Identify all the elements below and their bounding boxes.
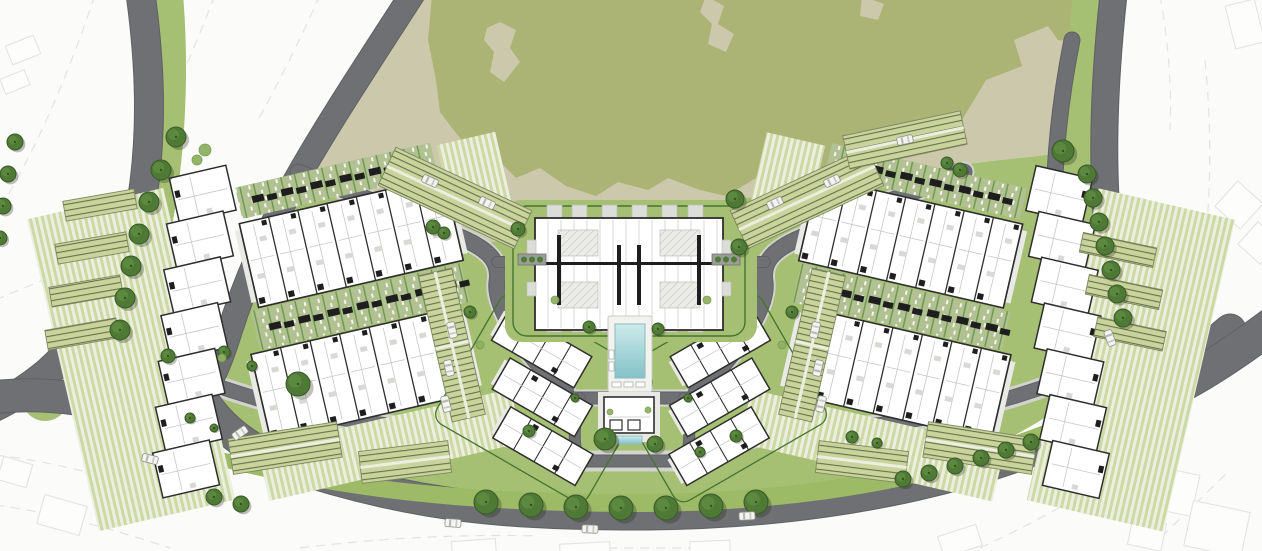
ghost-building-outline bbox=[690, 540, 731, 551]
car bbox=[582, 525, 598, 534]
water-feature bbox=[616, 436, 642, 444]
bush bbox=[778, 341, 786, 349]
car bbox=[445, 518, 462, 527]
site-plan-canvas bbox=[0, 0, 1262, 551]
bush bbox=[645, 407, 651, 413]
plan-layers bbox=[0, 0, 1262, 551]
courtyard bbox=[660, 282, 700, 308]
bush bbox=[199, 144, 211, 156]
bush bbox=[476, 341, 484, 349]
bush bbox=[703, 296, 711, 304]
swimming-pool bbox=[608, 316, 652, 392]
bush bbox=[192, 155, 202, 165]
pool-water bbox=[615, 324, 645, 378]
courtyard bbox=[558, 282, 598, 308]
pool-lounger bbox=[636, 382, 645, 387]
courtyard bbox=[558, 230, 598, 256]
bush bbox=[551, 296, 559, 304]
pool-lounger bbox=[609, 350, 614, 359]
pool-lounger bbox=[612, 382, 621, 387]
bush bbox=[607, 409, 613, 415]
pool-lounger bbox=[624, 382, 633, 387]
bush bbox=[218, 354, 226, 362]
pool-lounger bbox=[609, 362, 614, 371]
courtyard bbox=[660, 230, 700, 256]
car bbox=[739, 512, 755, 521]
site-plan bbox=[0, 0, 1262, 551]
